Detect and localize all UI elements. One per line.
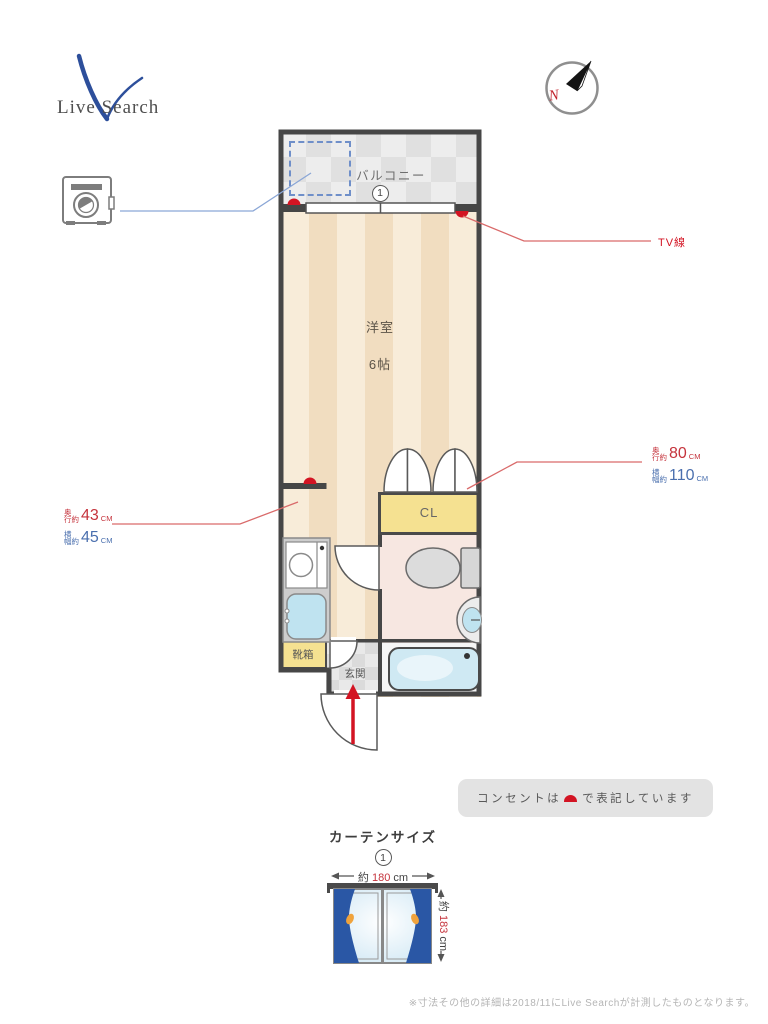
measure-unit: CM [101, 536, 113, 546]
front-door [321, 694, 377, 750]
measure-prefix: 行約 [652, 454, 667, 462]
measure-value: 43 [81, 508, 99, 524]
curtain-height-unit: cm [437, 936, 449, 951]
curtain-right [406, 889, 431, 963]
room-label: 洋室 [330, 317, 430, 336]
closet-leader-line [467, 462, 642, 489]
measured-date-note: ※寸法その他の詳細は2018/11にLive Searchが計測したものとなりま… [280, 994, 755, 1009]
counter-measurement: 奥 行約 43 CM 横 幅約 45 CM [64, 508, 112, 546]
room-size-label: 6帖 [330, 354, 430, 373]
tv-leader-line [463, 216, 651, 241]
washing-machine-icon [63, 177, 114, 225]
closet-measurement: 奥 行約 80 CM 横 幅約 110 CM [652, 446, 708, 484]
curtain-width-prefix: 約 [358, 872, 369, 884]
shoebox-label: 靴箱 [273, 647, 333, 662]
curtain-number-badge: 1 [375, 849, 392, 866]
outside-area [274, 672, 328, 702]
measure-prefix: 幅約 [64, 538, 79, 546]
floorplan-page: Live Search N バルコニー 1 洋室 6帖 CL 靴箱 玄関 TV線… [0, 0, 768, 1024]
tieback-icon [410, 913, 421, 926]
outlet-notice-prefix: コンセントは [477, 790, 561, 806]
measure-unit: CM [689, 452, 701, 462]
curtain-width-label: 約 180 cm [353, 869, 413, 885]
curtain-width-unit: cm [393, 872, 408, 884]
measure-prefix: 幅約 [652, 476, 667, 484]
toilet-room-floor [381, 535, 481, 643]
counter-leader-line [112, 502, 298, 524]
curtain-height-value: 183 [437, 915, 449, 933]
curtain-size-title: カーテンサイズ [313, 826, 453, 846]
measure-value: 80 [669, 446, 687, 462]
bath-room-floor [381, 643, 481, 695]
tieback-icon [345, 913, 356, 926]
measure-prefix: 行約 [64, 516, 79, 524]
measure-value: 45 [81, 530, 99, 546]
measure-unit: CM [101, 514, 113, 524]
outlet-notice: コンセントは で表記しています [458, 779, 713, 817]
curtain-width-value: 180 [372, 872, 390, 884]
closet-label: CL [389, 505, 469, 520]
curtain-height-prefix: 約 [437, 901, 449, 912]
measure-value: 110 [669, 468, 695, 484]
tv-line-label: TV線 [658, 234, 686, 250]
measure-unit: CM [697, 474, 709, 484]
curtain-height-label: 約 183 cm [436, 894, 452, 958]
outlet-notice-suffix: で表記しています [582, 790, 694, 806]
outlet-icon [564, 795, 577, 802]
window-number-badge: 1 [372, 185, 389, 202]
balcony-label: バルコニー [331, 165, 451, 184]
curtain-left [334, 889, 359, 963]
compass-north-label: N [548, 87, 560, 105]
curtain-diagram [327, 873, 445, 964]
logo-text: Live Search [57, 97, 197, 119]
entrance-label: 玄関 [325, 666, 385, 681]
